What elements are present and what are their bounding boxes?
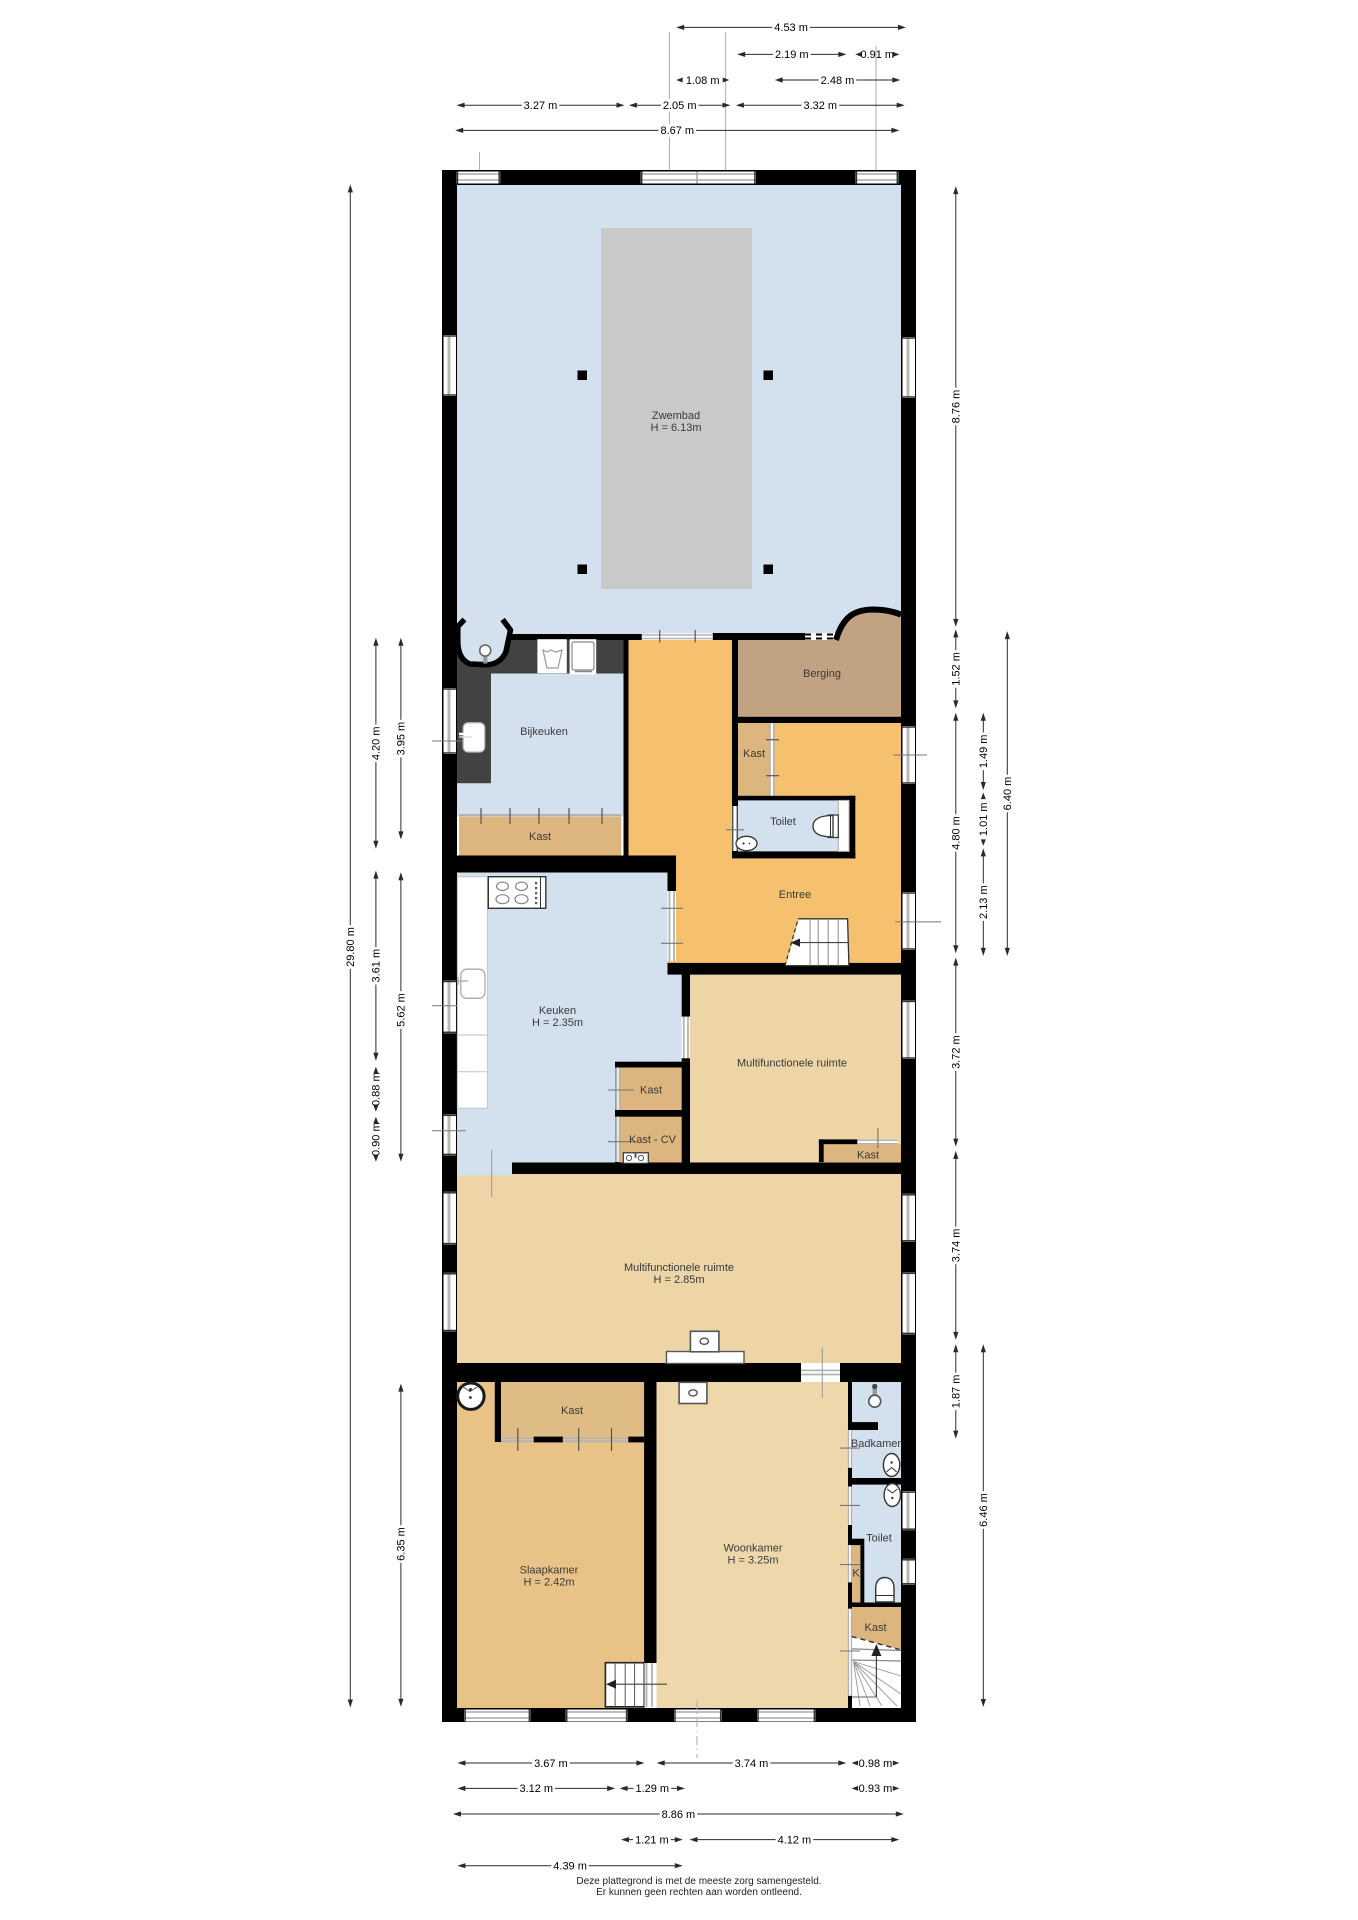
svg-text:1.08 m: 1.08 m (686, 75, 720, 87)
svg-text:WoonkamerH = 3.25m: WoonkamerH = 3.25m (723, 1543, 782, 1567)
svg-text:3.67 m: 3.67 m (534, 1758, 568, 1770)
svg-text:2.13 m: 2.13 m (978, 885, 990, 919)
svg-text:0.88 m: 0.88 m (371, 1072, 383, 1106)
svg-text:1.87 m: 1.87 m (951, 1375, 963, 1409)
svg-text:3.12 m: 3.12 m (519, 1783, 553, 1795)
svg-text:Bijkeuken: Bijkeuken (520, 726, 568, 738)
svg-text:2.05 m: 2.05 m (663, 100, 697, 112)
svg-text:3.32 m: 3.32 m (803, 100, 837, 112)
svg-text:3.27 m: 3.27 m (524, 100, 558, 112)
svg-text:KeukenH = 2.35m: KeukenH = 2.35m (532, 1005, 583, 1029)
svg-text:Kast: Kast (857, 1150, 879, 1162)
svg-text:1.49 m: 1.49 m (978, 735, 990, 769)
svg-text:6.46 m: 6.46 m (978, 1493, 990, 1527)
svg-text:Kast: Kast (561, 1405, 583, 1417)
svg-text:0.91 m: 0.91 m (860, 49, 894, 61)
svg-text:5.62 m: 5.62 m (396, 993, 408, 1027)
svg-text:4.39 m: 4.39 m (553, 1861, 587, 1873)
svg-text:0.93 m: 0.93 m (859, 1783, 893, 1795)
svg-text:1.29 m: 1.29 m (635, 1783, 669, 1795)
svg-text:SlaapkamerH = 2.42m: SlaapkamerH = 2.42m (520, 1565, 579, 1589)
svg-text:K: K (852, 1568, 860, 1580)
svg-text:4.20 m: 4.20 m (371, 726, 383, 760)
svg-text:Kast: Kast (640, 1085, 662, 1097)
svg-text:ZwembadH = 6.13m: ZwembadH = 6.13m (650, 410, 701, 434)
svg-text:6.40 m: 6.40 m (1002, 777, 1014, 811)
svg-text:Berging: Berging (803, 668, 841, 680)
svg-text:1.21 m: 1.21 m (635, 1834, 669, 1846)
svg-text:4.80 m: 4.80 m (951, 816, 963, 850)
svg-text:Kast: Kast (529, 831, 551, 843)
svg-text:2.48 m: 2.48 m (821, 75, 855, 87)
svg-text:8.86 m: 8.86 m (662, 1809, 696, 1821)
svg-text:3.95 m: 3.95 m (396, 722, 408, 756)
svg-text:Toilet: Toilet (770, 816, 796, 828)
svg-text:0.98 m: 0.98 m (859, 1758, 893, 1770)
svg-text:3.72 m: 3.72 m (951, 1035, 963, 1069)
svg-text:1.01 m: 1.01 m (978, 802, 990, 836)
svg-text:6.35 m: 6.35 m (396, 1527, 408, 1561)
svg-text:Entree: Entree (779, 889, 811, 901)
svg-text:Multifunctionele ruimte: Multifunctionele ruimte (737, 1058, 847, 1070)
svg-text:Badkamer: Badkamer (851, 1438, 901, 1450)
svg-text:2.19 m: 2.19 m (775, 49, 809, 61)
svg-text:3.61 m: 3.61 m (371, 949, 383, 983)
svg-text:Toilet: Toilet (866, 1533, 892, 1545)
svg-text:29.80 m: 29.80 m (345, 927, 357, 967)
svg-text:8.76 m: 8.76 m (951, 390, 963, 424)
svg-text:Er kunnen geen rechten aan wor: Er kunnen geen rechten aan worden ontlee… (596, 1887, 802, 1898)
svg-text:8.67 m: 8.67 m (660, 125, 694, 137)
svg-text:Kast - CV: Kast - CV (629, 1134, 677, 1146)
svg-text:0.90 m: 0.90 m (371, 1122, 383, 1156)
svg-text:Kast: Kast (864, 1622, 886, 1634)
svg-text:Kast: Kast (743, 748, 765, 760)
svg-text:4.53 m: 4.53 m (774, 22, 808, 34)
svg-text:1.52 m: 1.52 m (951, 652, 963, 686)
svg-text:4.12 m: 4.12 m (778, 1834, 812, 1846)
svg-text:Deze plattegrond is met de mee: Deze plattegrond is met de meeste zorg s… (576, 1876, 821, 1887)
svg-text:3.74 m: 3.74 m (951, 1229, 963, 1263)
svg-text:3.74 m: 3.74 m (735, 1758, 769, 1770)
